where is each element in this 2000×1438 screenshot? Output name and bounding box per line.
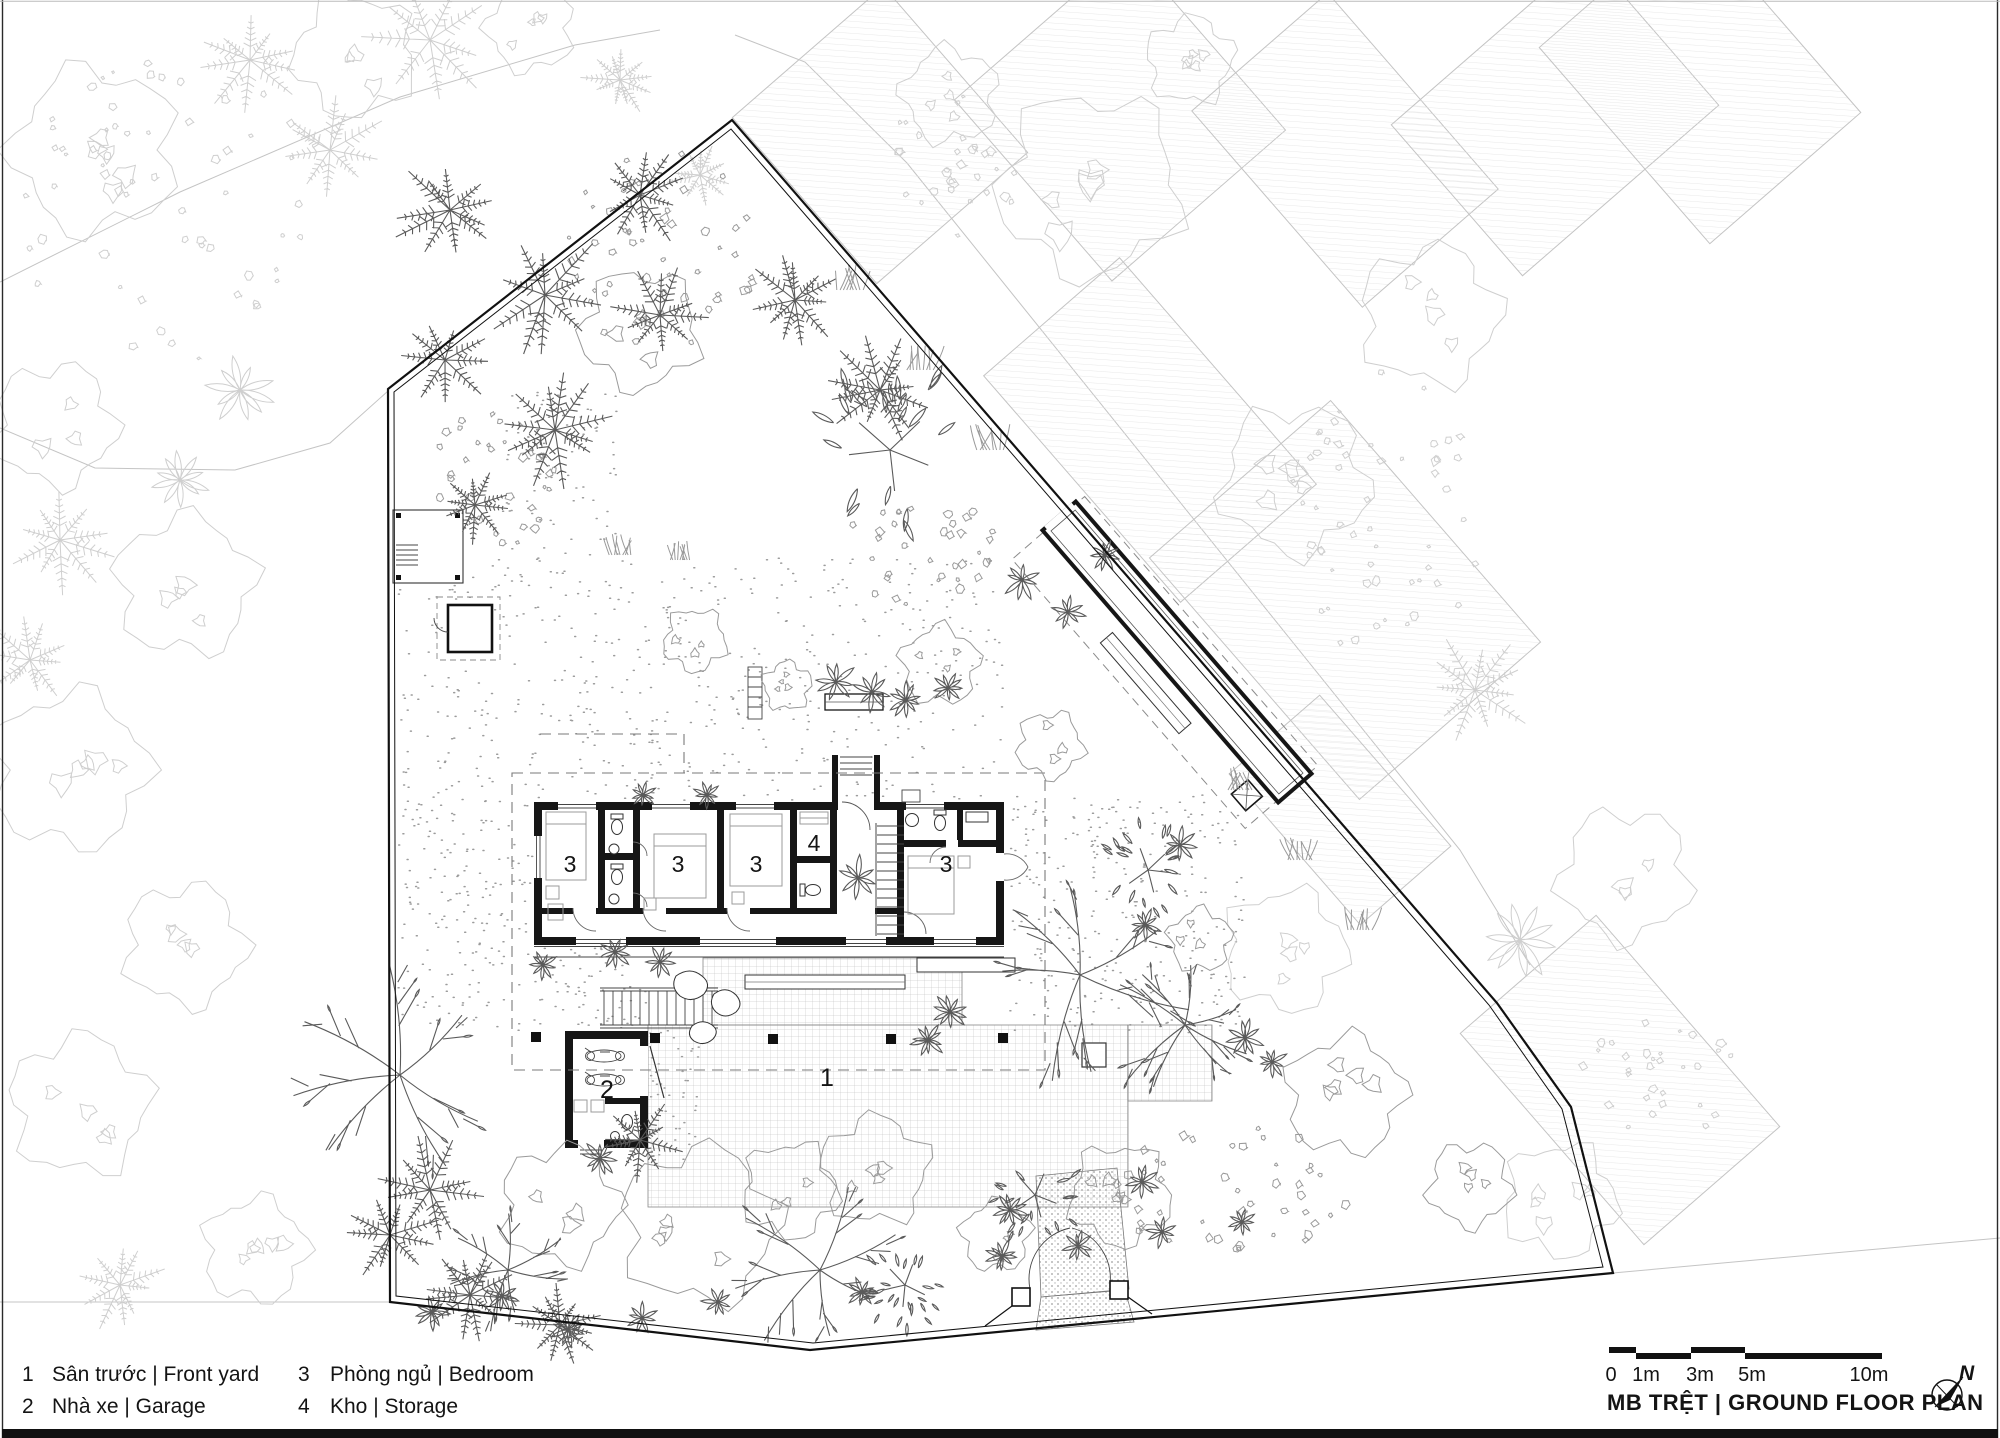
window-box [902,790,920,802]
toilet-icon [612,820,623,835]
stipple-gravel-texture [503,393,618,555]
pebble-scatter-icon [1113,1126,1350,1252]
bedroom-number: 3 [750,851,763,877]
toilet-icon [806,885,821,896]
palm-plant-icon [152,451,209,508]
fern-icon [515,1283,601,1364]
fern-icon [361,0,482,99]
scale-label: 10m [1850,1364,1889,1386]
sink-icon [609,844,619,854]
bedroom-number: 3 [672,851,685,877]
palm-plant-icon [1229,1210,1255,1235]
tree-canopy-icon [9,1029,159,1176]
toilet-icon [800,884,805,896]
tree-canopy-icon [0,682,161,852]
tree-canopy-icon [1423,1143,1517,1233]
stipple-gravel-texture [398,558,1003,801]
toilet-icon [935,816,946,831]
tree-canopy-icon [0,60,178,242]
north-label: N [1959,1362,1975,1385]
fern-icon [610,268,709,352]
site-plan-drawing: 1 2 3 3 3 4 3 1 Sân trước | Front yard 2… [0,0,2000,1438]
tree-canopy-icon [110,506,266,659]
scooter-icon [585,1048,625,1062]
fern-icon [13,492,115,595]
bedroom-number: 3 [940,851,953,877]
garage-door-opening [640,1046,648,1096]
tree-canopy-icon [288,0,412,118]
leaf-tree-icon [1102,818,1179,917]
branch-tree-icon [291,965,486,1179]
title-block: 0 1m 3m 5m 10m MB TRỆT | GROUND FLOOR PL… [1605,1347,1983,1415]
bedroom-number: 3 [564,851,577,877]
drawing-title: MB TRỆT | GROUND FLOOR PLAN [1607,1390,1984,1415]
legend-label: Phòng ngủ | Bedroom [330,1363,534,1386]
scale-bar [1609,1347,1882,1359]
fern-icon [396,169,492,252]
tree-canopy-icon [1227,883,1352,1013]
fern-icon [201,15,295,113]
gate-wing [985,1306,1012,1326]
tree-canopy-icon [0,362,125,495]
fern-icon [401,326,488,402]
grass-tuft-icon [604,534,632,555]
fern-icon [80,1249,165,1330]
palm-plant-icon [646,948,676,978]
legend: 1 Sân trước | Front yard 2 Nhà xe | Gara… [22,1363,534,1418]
house [534,755,1028,945]
tree-canopy-icon [1015,710,1088,781]
palm-plant-icon [633,782,656,805]
palm-plant-icon [1052,596,1086,629]
legend-number: 3 [298,1363,310,1386]
toilet-icon [612,870,623,885]
palm-plant-icon [205,356,274,420]
garden-pad [393,510,463,583]
built-structures [393,493,1319,1330]
scale-label: 5m [1738,1364,1766,1386]
trellis [748,667,762,719]
palm-plant-icon [1166,826,1197,860]
toilet-icon [611,814,623,819]
branch-tree-icon [732,1187,906,1342]
palm-plant-icon [530,952,556,980]
closet-fixture [966,812,988,822]
fern-icon [0,617,64,696]
tree-canopy-icon [121,881,256,1014]
road-edge [0,391,388,470]
pebble-scatter-icon [850,506,996,605]
road-edge [1613,1238,2000,1273]
palm-plant-icon [1146,1217,1176,1248]
floor-plan-sheet: 1 2 3 3 3 4 3 1 Sân trước | Front yard 2… [0,0,2000,1438]
sink-icon [609,894,619,904]
storage-number: 4 [808,830,821,856]
legend-number: 4 [298,1395,310,1418]
legend-label: Kho | Storage [330,1395,458,1418]
tree-canopy-icon [499,1140,628,1271]
toilet-icon [934,810,946,815]
legend-label: Nhà xe | Garage [52,1395,206,1418]
toilet-icon [611,864,623,869]
garage-bench [574,1100,587,1112]
tree-canopy-icon [761,659,812,710]
leaf-tree-icon [860,1254,944,1336]
legend-number: 2 [22,1395,34,1418]
palm-plant-icon [1226,1019,1263,1053]
gate-post [1110,1281,1128,1299]
side-planter [917,958,1015,972]
sheet-bottom-bar [2,1429,1998,1438]
gate-post [1012,1288,1030,1306]
scale-label: 1m [1632,1364,1660,1386]
front-yard-number: 1 [820,1064,834,1092]
scale-label: 3m [1686,1364,1714,1386]
tree-canopy-icon [1164,904,1234,971]
palm-plant-icon [628,1302,657,1333]
sink-icon [906,814,919,827]
palm-plant-icon [849,1278,878,1305]
courtyard [748,667,883,719]
pebble-scatter-icon [23,60,302,360]
garage-number: 2 [600,1076,614,1104]
tree-canopy-icon [479,0,574,76]
parcel [1460,915,1780,1244]
fern-icon [580,49,651,112]
fern-icon [494,244,601,355]
tree-canopy-icon [664,609,729,673]
legend-number: 1 [22,1363,34,1386]
parcel [732,0,1027,284]
legend-label: Sân trước | Front yard [52,1363,259,1386]
fern-icon [753,255,836,345]
tree-canopy-icon [200,1191,316,1304]
garden-shed [434,597,500,660]
palm-plant-icon [1006,565,1039,600]
palm-plant-icon [1261,1051,1287,1078]
scale-label: 0 [1605,1364,1616,1386]
fern-icon [347,1200,439,1275]
tree-canopy-icon [1551,807,1698,951]
palm-plant-icon [701,1289,730,1314]
grass-tuft-icon [667,541,689,560]
